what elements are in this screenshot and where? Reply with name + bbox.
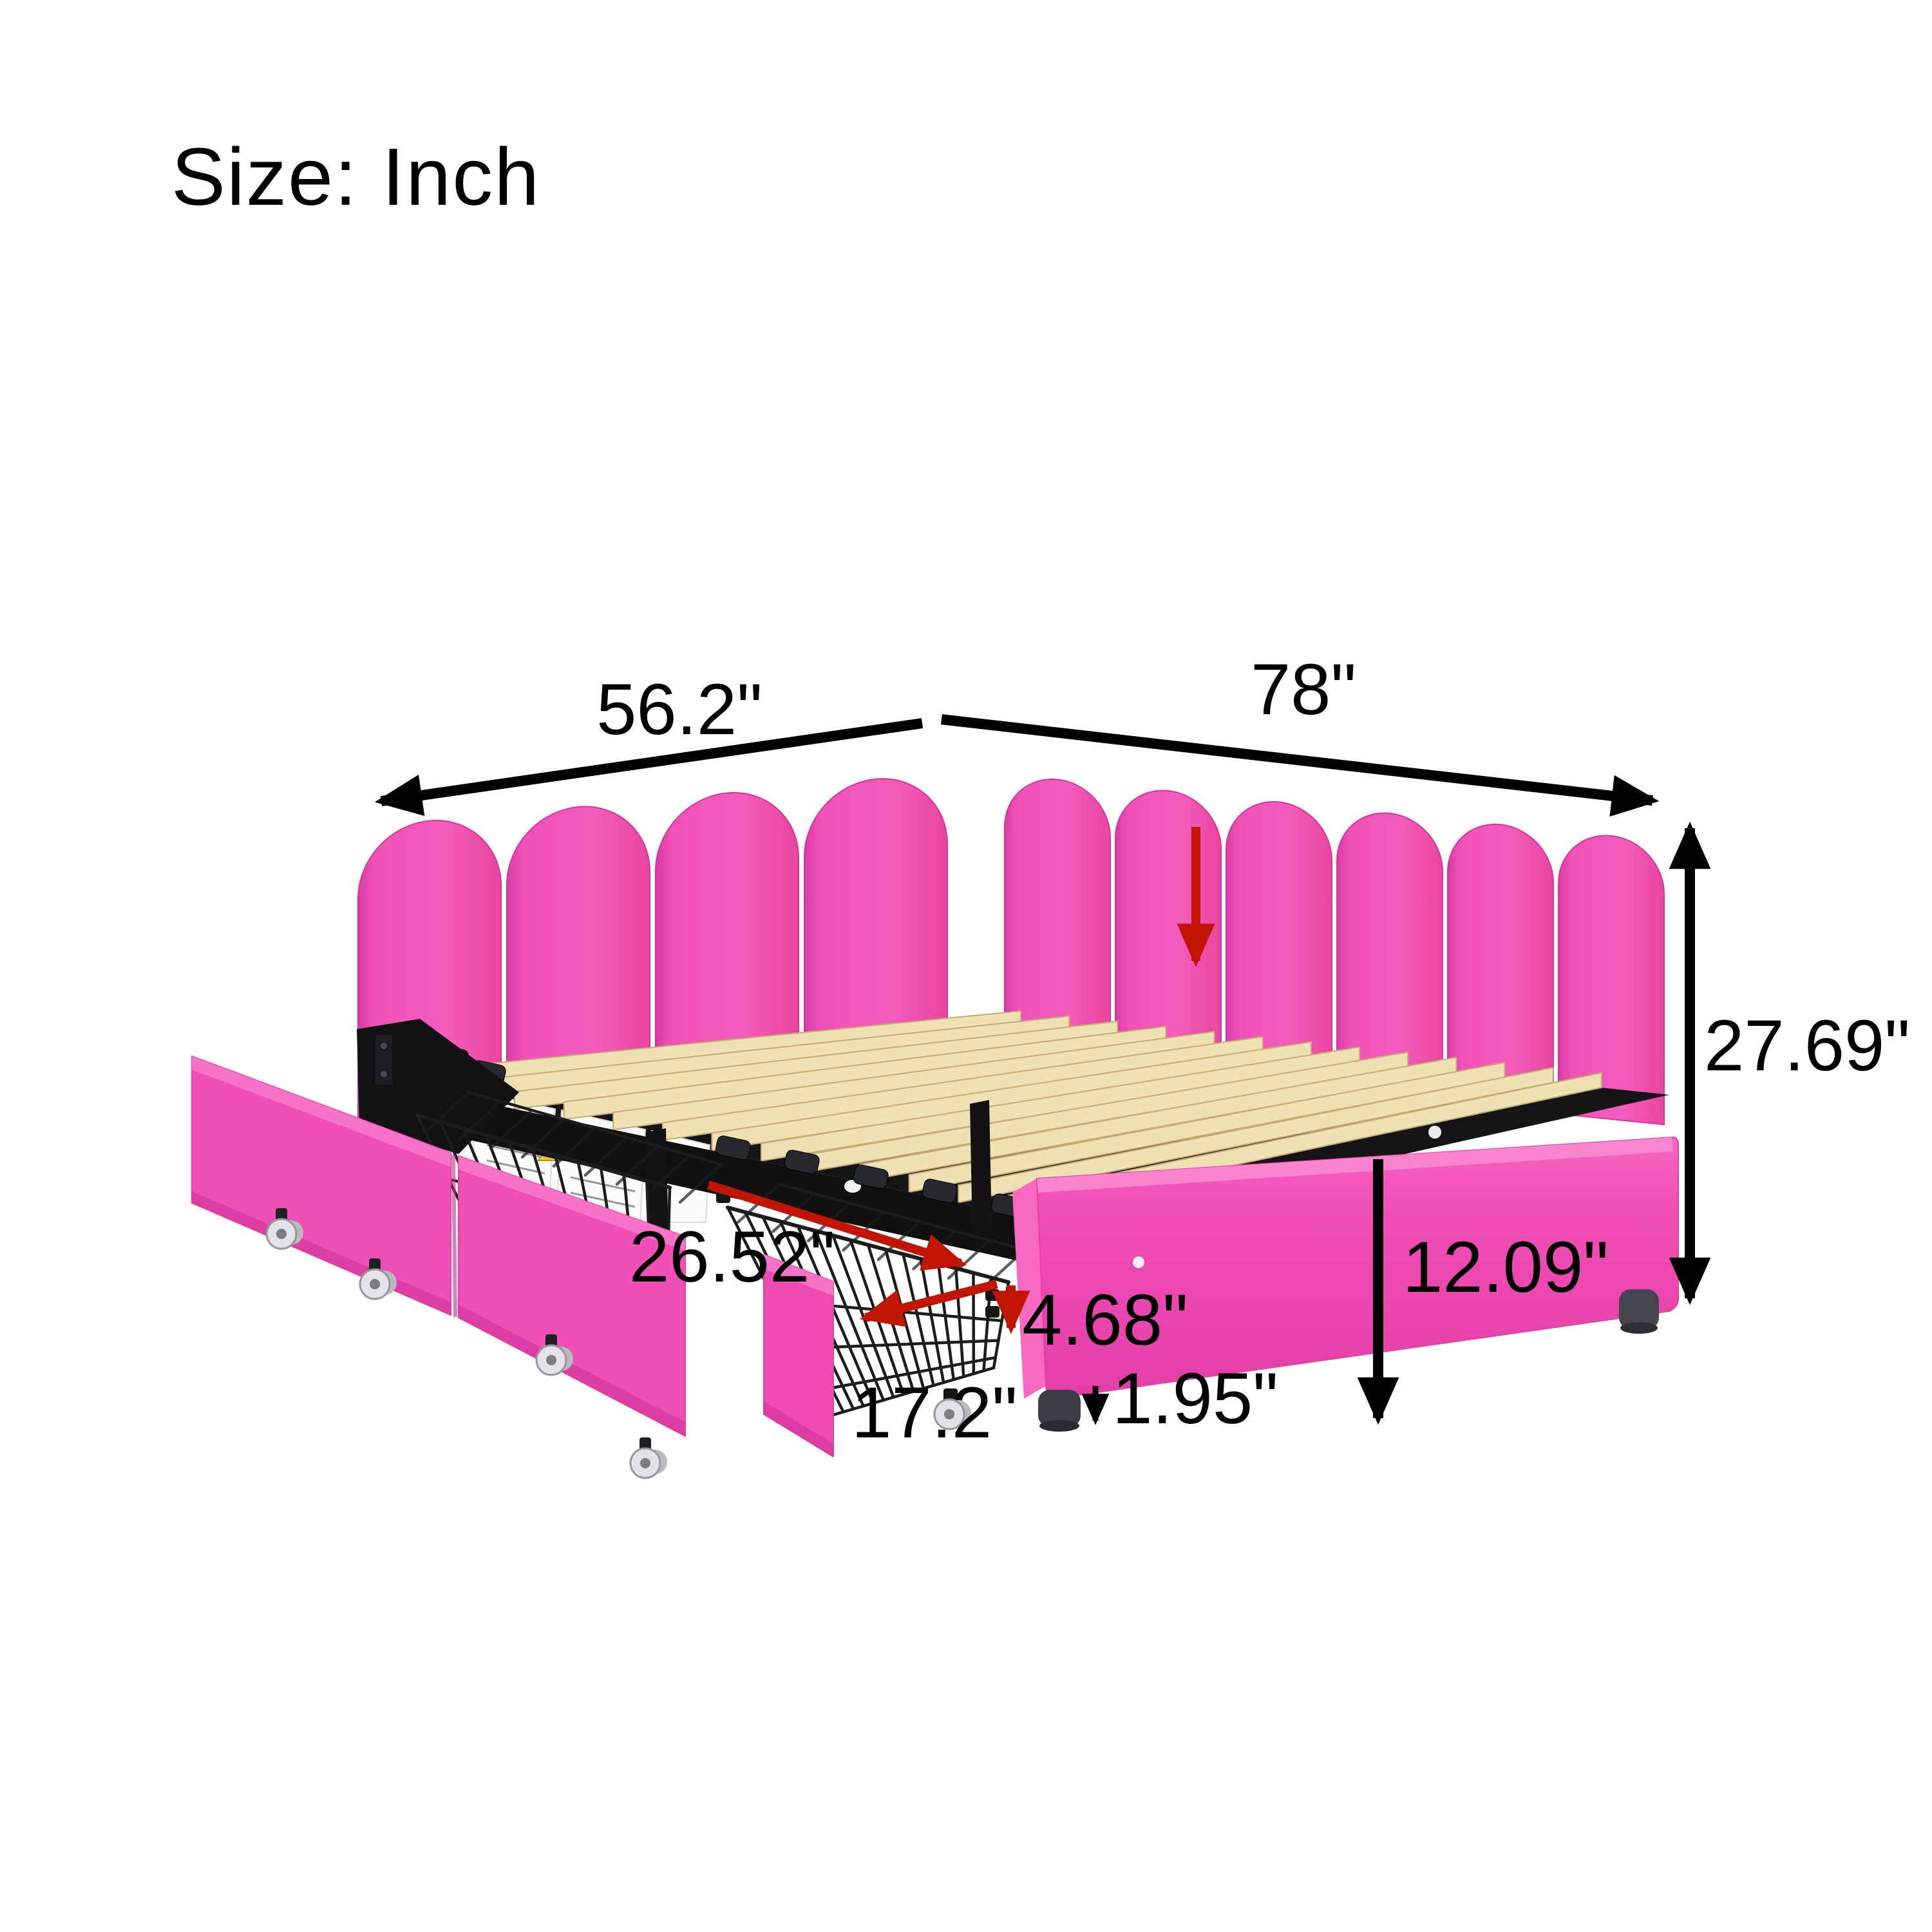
basket-clip [985, 1306, 999, 1318]
basket-wire-vertical [956, 1268, 963, 1376]
label-headboard-width: 56.2" [596, 669, 762, 750]
label-leg-height: 1.95" [1112, 1358, 1278, 1439]
label-total-height: 27.69" [1704, 1005, 1910, 1086]
leg-right [1619, 1289, 1659, 1334]
caster-hub [546, 1355, 556, 1365]
caster-hub [276, 1229, 287, 1239]
label-drawer-height: 4.68" [1022, 1280, 1188, 1360]
leg-front [1038, 1390, 1081, 1432]
rail-sticker-right [1428, 1126, 1441, 1139]
label-drawer-depth: 26.52" [629, 1217, 835, 1297]
caster-hub [640, 1458, 650, 1468]
label-bed-length: 78" [1251, 649, 1356, 730]
bed-dimension-diagram: Size: Inch 56.2" 78" 27.69" 12.09" 26.52… [0, 0, 1932, 1932]
label-drawer-width: 17.2" [851, 1372, 1018, 1453]
caster-wheel [630, 1437, 667, 1478]
label-rail-height: 12.09" [1403, 1227, 1609, 1307]
caster-hub [370, 1279, 380, 1289]
rail-sticker-front [1133, 1256, 1144, 1268]
size-unit-title: Size: Inch [171, 131, 540, 222]
